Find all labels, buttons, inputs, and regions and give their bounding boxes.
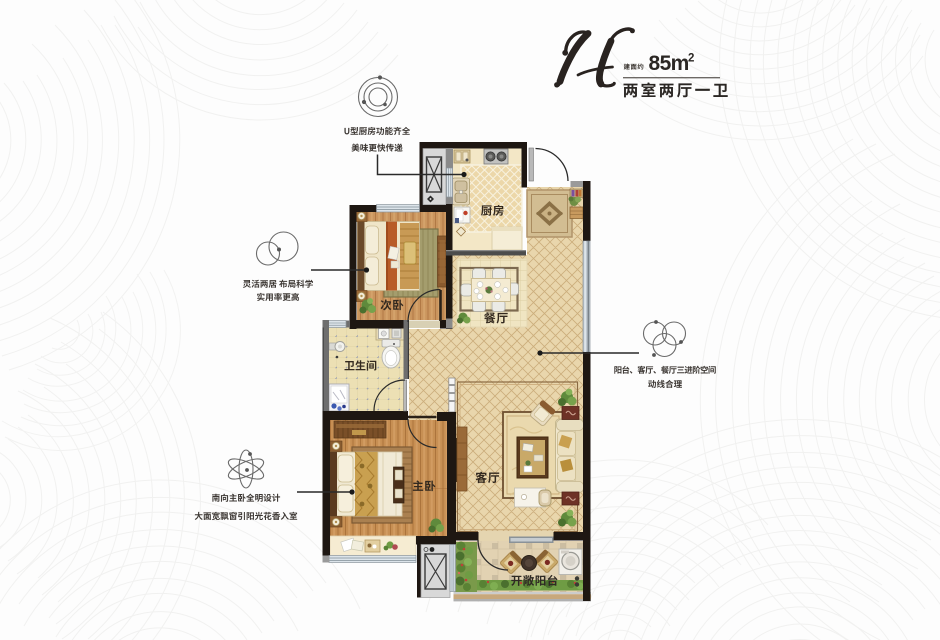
svg-text:85m: 85m: [649, 52, 689, 75]
svg-text:2: 2: [688, 53, 694, 65]
